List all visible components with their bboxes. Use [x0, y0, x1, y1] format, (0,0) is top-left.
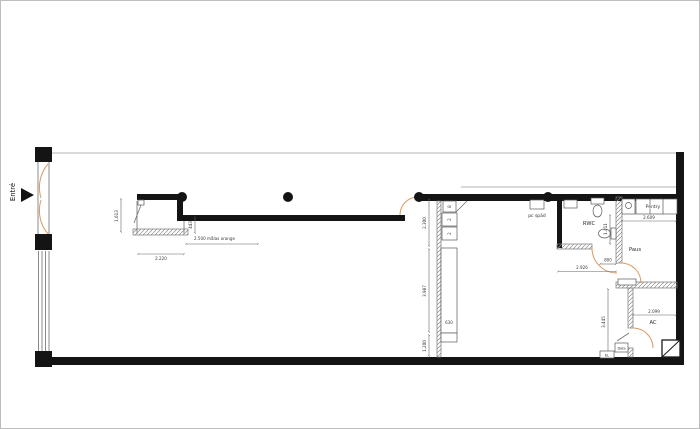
- ac-wall-stub: [628, 348, 633, 357]
- pc-spad-label: pc späd: [528, 213, 546, 219]
- floor-plan-drawing: Entré 1.613 443 2.220 2.500 målas orange: [1, 1, 700, 429]
- paus-room: Paus: [616, 247, 677, 288]
- entrance-annotation: Entré: [9, 183, 34, 202]
- dimension-text: 1.411: [603, 223, 608, 235]
- rwc-label: RWC: [583, 221, 596, 227]
- dimension-text: 2.099: [648, 309, 660, 314]
- door-leaf-line: [134, 205, 141, 223]
- dimension-text: 2.609: [643, 215, 655, 220]
- entrance-label: Entré: [9, 183, 17, 201]
- dimension-text: 1.200: [422, 340, 427, 352]
- wall-stub: [137, 194, 182, 200]
- right-wall: [676, 152, 684, 365]
- column: [177, 192, 187, 202]
- column: [283, 192, 293, 202]
- data-cabinet-label: Data: [617, 347, 625, 351]
- toilet-bowl: [593, 205, 602, 217]
- left-facade: [35, 147, 52, 367]
- floor-plan-canvas: Entré 1.613 443 2.220 2.500 målas orange: [0, 0, 700, 429]
- dimension-kitchen-mid: 3.987: [422, 249, 429, 332]
- el-cabinet-label: EL: [605, 354, 609, 358]
- wall-pier: [35, 351, 52, 367]
- corridor-right: 3.445 Data EL: [600, 289, 629, 358]
- entrance-arrow-icon: [21, 188, 34, 202]
- dimension-room-width: 2.220: [138, 254, 184, 261]
- dimension-entry-width: 1.613: [114, 199, 121, 232]
- column: [543, 192, 553, 202]
- ac-label: AC: [649, 320, 656, 326]
- pentry-label: Pentry: [646, 204, 661, 210]
- dimension-rwc-door: 800: [600, 258, 616, 265]
- rwc-left-wall: [557, 194, 562, 248]
- plumbing-wall: [616, 197, 622, 263]
- sink-fixture: [564, 200, 577, 208]
- dimension-text: 3.445: [601, 316, 606, 328]
- bottom-wall: [48, 357, 684, 365]
- note-text: 2.500 målas orange: [194, 236, 235, 241]
- toilet-tank: [611, 228, 616, 239]
- counter-depth-text: 630: [445, 320, 453, 325]
- sink-fixture: [530, 200, 544, 209]
- pentry: Pentry 2.609: [622, 199, 677, 221]
- wall-pier: [35, 147, 52, 162]
- long-wall: [177, 215, 405, 221]
- orange-paint-note: 2.500 målas orange: [186, 236, 258, 244]
- dimension-text: 3.987: [422, 285, 427, 297]
- toilet-tank: [591, 198, 604, 204]
- entrance-door-leaf-arc: [39, 200, 48, 234]
- dimension-text: 2.220: [155, 256, 167, 261]
- hatched-sill: [133, 229, 188, 235]
- sink-fixture: [622, 199, 635, 214]
- building-outline: [48, 152, 684, 365]
- dimension-text: 2.926: [576, 265, 588, 270]
- door-leaf-line: [617, 333, 629, 341]
- kitchen-strip: 8 2 2 630: [437, 201, 467, 357]
- rwc-bottom-wall: [557, 244, 592, 249]
- dimension-text: 1.613: [114, 210, 119, 222]
- dimension-text: 800: [604, 258, 612, 263]
- paus-label: Paus: [629, 247, 641, 253]
- entrance-door-leaf-arc: [39, 164, 48, 198]
- rwc-room: RWC 1.411: [557, 194, 622, 273]
- dimension-kitchen-bot: 1.200: [422, 335, 429, 356]
- door-leaf-line: [456, 201, 467, 212]
- ac-left-wall: [628, 288, 633, 328]
- fixture-label: 2: [447, 218, 452, 221]
- fixture-label: 2: [447, 232, 452, 235]
- wall-pier: [35, 234, 52, 250]
- door-hinge-box: [138, 200, 144, 205]
- counter-end: [441, 333, 457, 342]
- fixture-label: 8: [447, 205, 452, 208]
- dimension-kitchen-top: 2.300: [422, 199, 429, 246]
- dimension-corridor: 2.926: [558, 265, 616, 272]
- ac-room: AC 2.099: [628, 288, 680, 357]
- pc-spad: pc späd: [528, 200, 546, 219]
- ac-door-swing-arc: [633, 328, 653, 348]
- dimension-text: 2.300: [422, 217, 427, 229]
- hatched-wall: [437, 201, 441, 357]
- cabinet-fixture: [618, 279, 636, 285]
- dimension-text: 443: [188, 221, 193, 229]
